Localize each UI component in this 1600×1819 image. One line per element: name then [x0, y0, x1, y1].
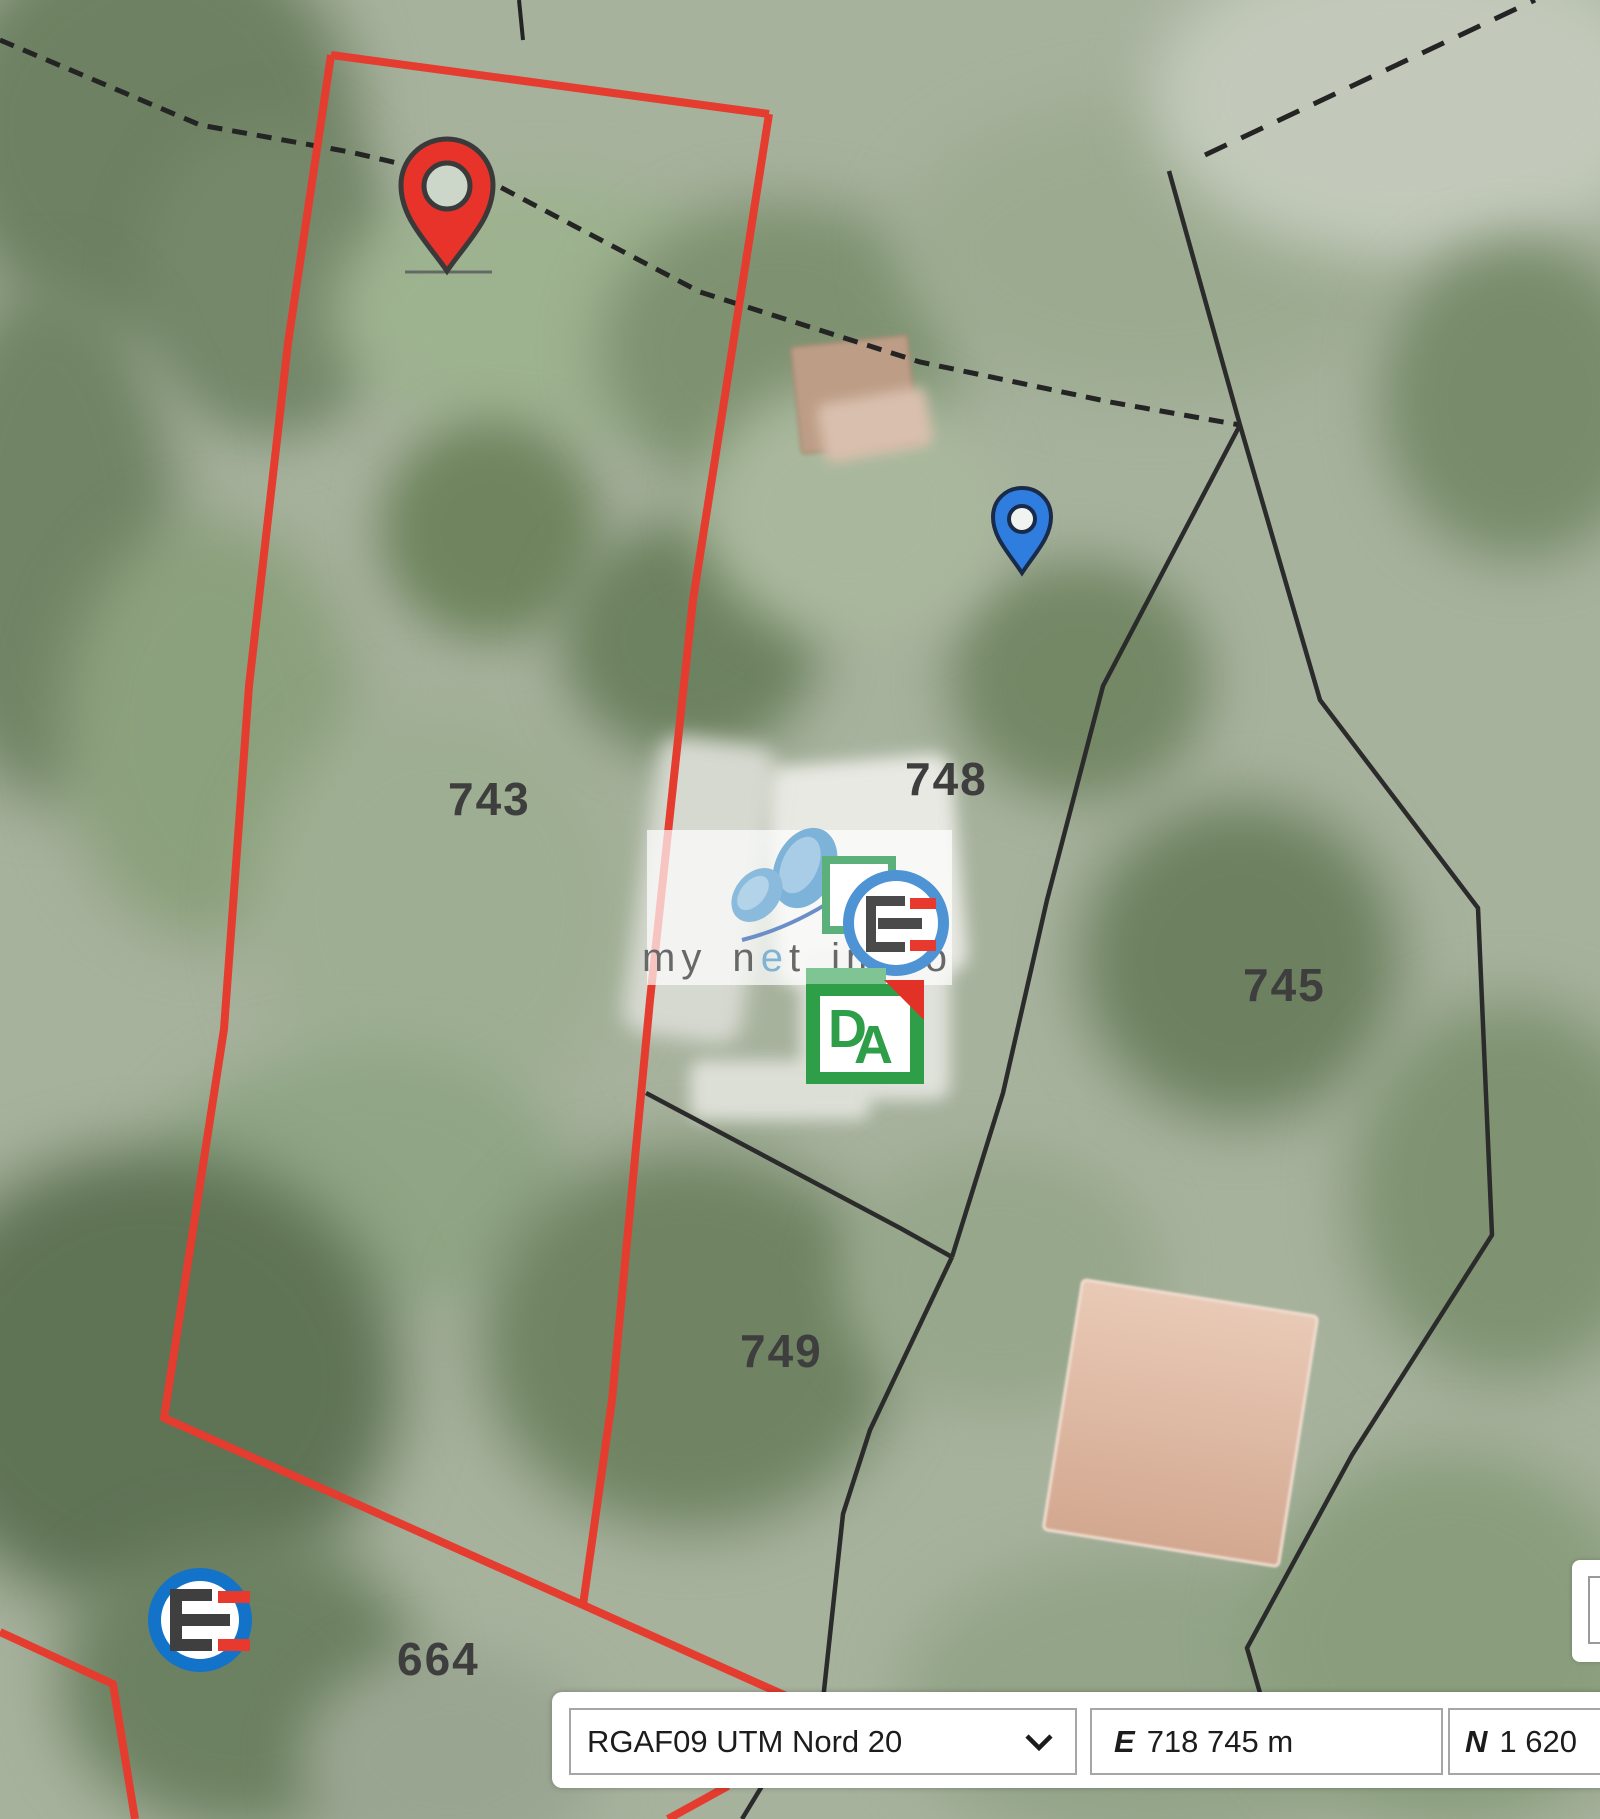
parcel-label-748: 748 — [905, 752, 988, 806]
map-canvas[interactable]: 743 748 745 749 664 my net immo — [0, 0, 1600, 1819]
red-line-bottom-fragment — [668, 1786, 728, 1819]
northing-readout: N 1 620 — [1448, 1708, 1600, 1775]
selected-parcel-north-edge — [331, 55, 769, 114]
red-parcel-bottomleft — [0, 1632, 135, 1819]
northing-value: 1 620 — [1499, 1724, 1577, 1760]
parcel-boundary-bottom-fragment — [742, 1786, 762, 1819]
parcel-boundary-749-west — [823, 1257, 952, 1700]
corner-logo-red-bottom — [218, 1639, 250, 1651]
dashed-boundary-topright — [1205, 0, 1535, 155]
parcel-label-745: 745 — [1243, 958, 1326, 1012]
crs-select[interactable]: RGAF09 UTM Nord 20 — [569, 1708, 1077, 1775]
easting-label: E — [1114, 1724, 1135, 1760]
crs-select-value: RGAF09 UTM Nord 20 — [587, 1724, 902, 1760]
parcel-boundary-748-745 — [952, 425, 1240, 1257]
coordinate-toolbar: RGAF09 UTM Nord 20 E 718 745 m N 1 620 — [552, 1692, 1600, 1788]
corner-logo-red-top — [218, 1591, 250, 1603]
cropped-panel[interactable] — [1572, 1560, 1600, 1662]
parcel-boundary-east — [1169, 171, 1492, 1700]
boundary-tick-top — [519, 0, 523, 40]
easting-value: 718 745 m — [1147, 1724, 1294, 1760]
parcel-label-664: 664 — [397, 1632, 480, 1686]
parcel-label-743: 743 — [448, 772, 531, 826]
chevron-down-icon — [1025, 1734, 1053, 1752]
da-letter-a: A — [854, 1018, 893, 1072]
northing-label: N — [1465, 1724, 1487, 1760]
parcel-label-749: 749 — [740, 1324, 823, 1378]
cropped-panel-button[interactable] — [1588, 1576, 1600, 1644]
easting-readout: E 718 745 m — [1090, 1708, 1443, 1775]
parcel-boundary-749-north — [646, 1093, 952, 1257]
corner-logo-midbar — [182, 1614, 230, 1626]
